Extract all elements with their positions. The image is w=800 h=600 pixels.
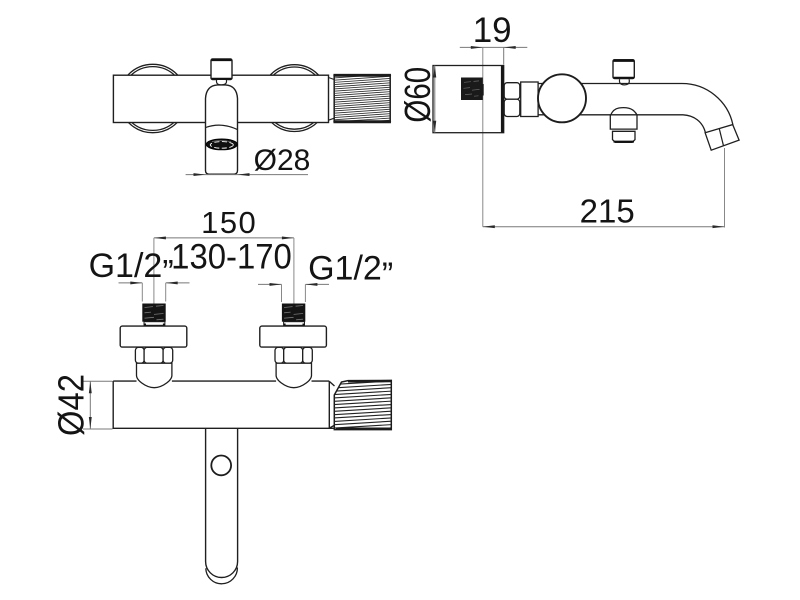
svg-text:130-170: 130-170 bbox=[171, 237, 292, 276]
svg-text:215: 215 bbox=[580, 193, 635, 230]
svg-text:19: 19 bbox=[473, 11, 512, 50]
svg-text:G1/2”: G1/2” bbox=[308, 249, 393, 294]
svg-text:150: 150 bbox=[201, 205, 257, 240]
svg-text:Ø60: Ø60 bbox=[397, 67, 437, 123]
svg-text:Ø28: Ø28 bbox=[254, 144, 311, 177]
svg-text:G1/2”: G1/2” bbox=[89, 247, 174, 292]
svg-text:Ø42: Ø42 bbox=[52, 374, 92, 436]
